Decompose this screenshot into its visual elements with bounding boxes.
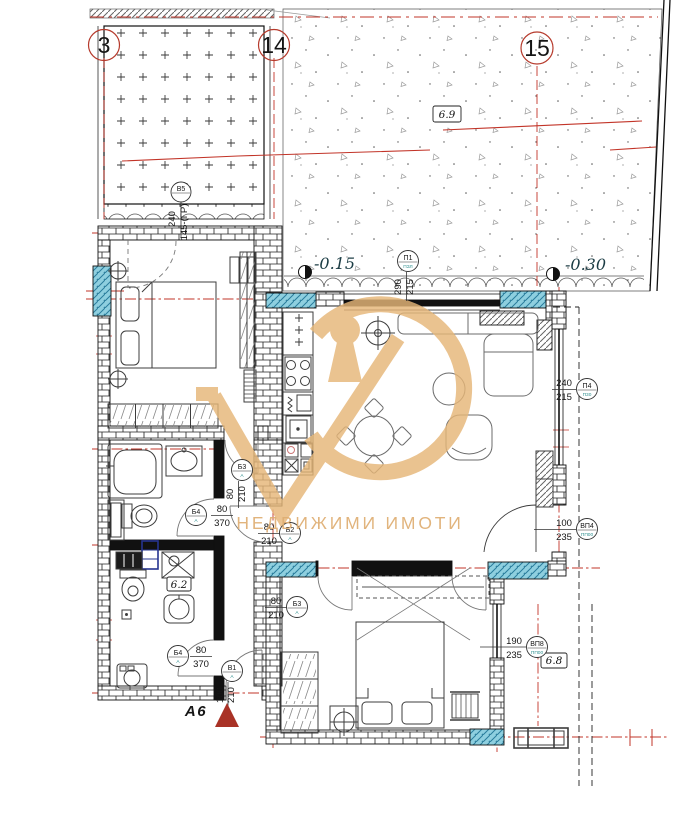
dim-height: 210 <box>237 486 248 502</box>
washing-machine <box>117 664 147 688</box>
level-value: -0.15 <box>314 254 355 273</box>
dim-width: 80 <box>225 489 236 500</box>
dining-table <box>354 416 394 456</box>
tag-code: Б4 <box>174 650 183 657</box>
tag-sub: ПЗЛ <box>403 264 412 270</box>
furniture-bedroom1 <box>108 252 256 428</box>
door-tag: Б4 А 80 370 <box>186 504 234 529</box>
entrance-triangle-icon <box>215 703 239 727</box>
watermark-logo <box>196 304 464 514</box>
dim-width: 80 <box>271 596 282 607</box>
floor-plan-drawing: 3 14 15 -0.15 -0.30 6.9 6.2 6.8 П1 ПЗЛ <box>0 0 694 818</box>
level-value: -0.30 <box>565 255 606 274</box>
tag-sub: П30 <box>583 392 592 398</box>
tag-sub: ПП00 <box>531 650 544 656</box>
site-terrain <box>90 0 670 291</box>
furniture-kitchen <box>283 312 313 475</box>
area-label: 6.2 <box>171 579 188 591</box>
area-label: 6.8 <box>546 655 563 667</box>
dim-height: 210 <box>261 536 277 547</box>
counter-unit <box>116 552 142 569</box>
grid-marker-15: 15 <box>524 35 550 61</box>
furniture-bathroom <box>106 444 202 540</box>
sink-tap <box>288 397 292 412</box>
dim-width: 100 <box>215 687 226 703</box>
dim-height: 210 <box>226 687 237 703</box>
tag-code: Б4 <box>192 509 201 516</box>
grid-marker-14: 14 <box>261 32 287 58</box>
tag-code: ВП8 <box>530 641 544 648</box>
dim-height: 235 <box>556 532 572 543</box>
window-living-top <box>500 291 546 308</box>
windows <box>93 266 548 745</box>
chair <box>392 426 412 446</box>
chair <box>364 398 384 418</box>
dim-width: 80 <box>217 504 228 515</box>
dim-width: 290 <box>393 279 404 295</box>
door-tag: Б3 А 80 210 <box>225 460 253 509</box>
tag-sub: ПП00 <box>581 532 594 538</box>
tag-code: Б3 <box>293 601 302 608</box>
furniture-living <box>398 313 553 507</box>
opening-tag: ВП8 ПП00 190 235 <box>480 636 548 661</box>
dim-height: 215 <box>405 279 416 295</box>
window-bedroom1-left <box>93 266 111 316</box>
terrain-area <box>283 9 662 291</box>
tag-code: П4 <box>583 383 592 390</box>
dim-width: 190 <box>506 636 522 647</box>
tag-code: В1 <box>228 665 237 672</box>
dim-height: 370 <box>193 659 209 670</box>
toilet <box>131 505 157 527</box>
bed-1 <box>116 282 216 368</box>
toilet <box>122 577 144 601</box>
dim-width: 240 <box>556 378 572 389</box>
dim-width: 240 <box>167 211 178 227</box>
tag-code: П1 <box>404 255 413 262</box>
dim-height: 370 <box>214 518 230 529</box>
tag-code: Б3 <box>238 464 247 471</box>
dim-height: 215 <box>556 392 572 403</box>
window-bedroom2-bottom <box>470 729 504 745</box>
area-label: 6.9 <box>439 109 456 121</box>
terrain-gravel-band <box>284 276 644 291</box>
window-kitchen-top <box>266 293 316 308</box>
walls <box>93 226 566 745</box>
window-bedroom2-topleft <box>266 562 316 577</box>
window-step-wall <box>488 562 548 579</box>
keyhole-icon <box>330 315 360 345</box>
apartment-label: А6 <box>184 703 207 720</box>
bathtub <box>108 444 162 498</box>
grid-marker-3: 3 <box>98 32 111 58</box>
terrace-plus-area <box>104 26 264 204</box>
dim-height: 145-(ГР) <box>179 204 190 241</box>
door-tag: Б4 А 80 370 <box>168 645 213 670</box>
watermark-text: НЕДВИЖИМИ ИМОТИ <box>236 513 463 533</box>
tag-code: ВП4 <box>580 523 594 530</box>
dim-width: 80 <box>196 645 207 656</box>
bed-2 <box>356 622 444 728</box>
dim-height: 235 <box>506 650 522 661</box>
tag-code: В5 <box>177 186 186 193</box>
sofa-chaise <box>484 334 533 396</box>
kitchen-sink <box>297 395 311 411</box>
opening-tag: ВП4 ПП00 100 235 <box>534 518 598 543</box>
dim-width: 100 <box>556 518 572 529</box>
dim-height: 210 <box>268 610 284 621</box>
